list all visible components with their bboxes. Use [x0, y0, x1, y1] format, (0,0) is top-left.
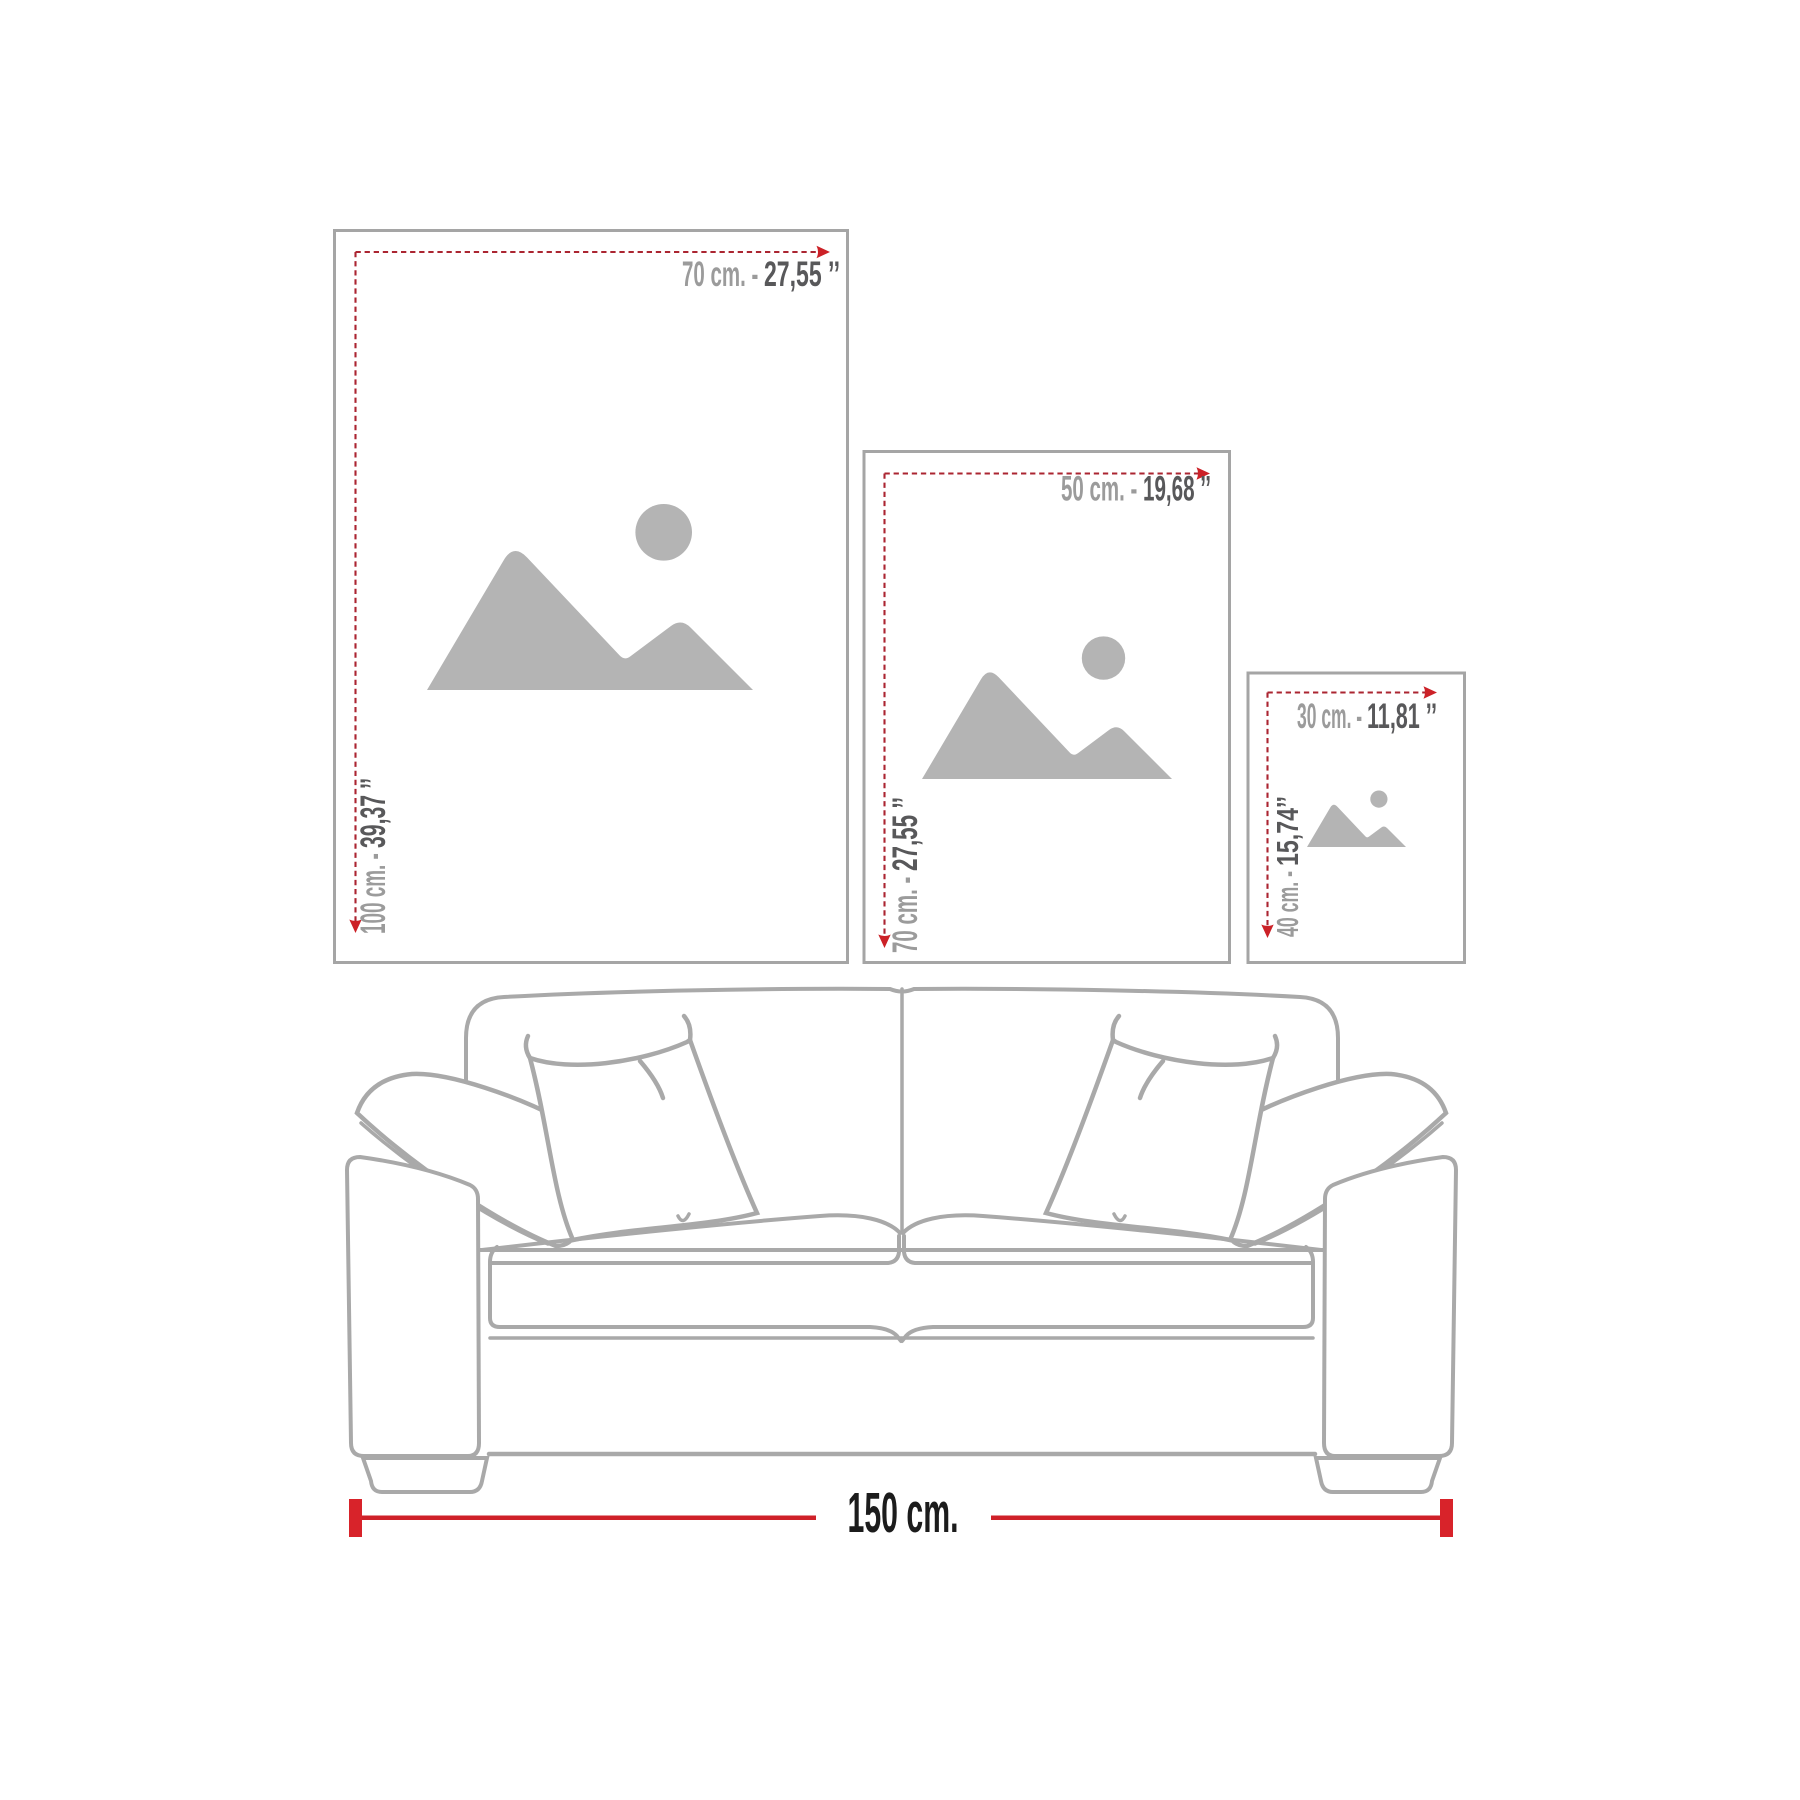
svg-text:11,81 ’’: 11,81 ’’: [1367, 697, 1437, 736]
svg-text:27,55 ’’: 27,55 ’’: [886, 797, 925, 871]
svg-text:40 cm. -: 40 cm. -: [1270, 866, 1305, 937]
svg-text:27,55 ’’: 27,55 ’’: [764, 255, 840, 294]
svg-text:70 cm. -: 70 cm. -: [682, 255, 764, 294]
svg-text:100 cm. -: 100 cm. -: [354, 848, 393, 934]
svg-text:39,37 ’’: 39,37 ’’: [354, 778, 393, 848]
svg-text:50 cm. -: 50 cm. -: [1061, 470, 1143, 509]
svg-text:150 cm.: 150 cm.: [848, 1481, 959, 1545]
svg-text:15,74’’: 15,74’’: [1270, 796, 1305, 866]
svg-text:19,68 ’’: 19,68 ’’: [1143, 470, 1211, 509]
svg-text:30 cm. -: 30 cm. -: [1297, 697, 1367, 736]
svg-text:70 cm. -: 70 cm. -: [886, 871, 925, 953]
